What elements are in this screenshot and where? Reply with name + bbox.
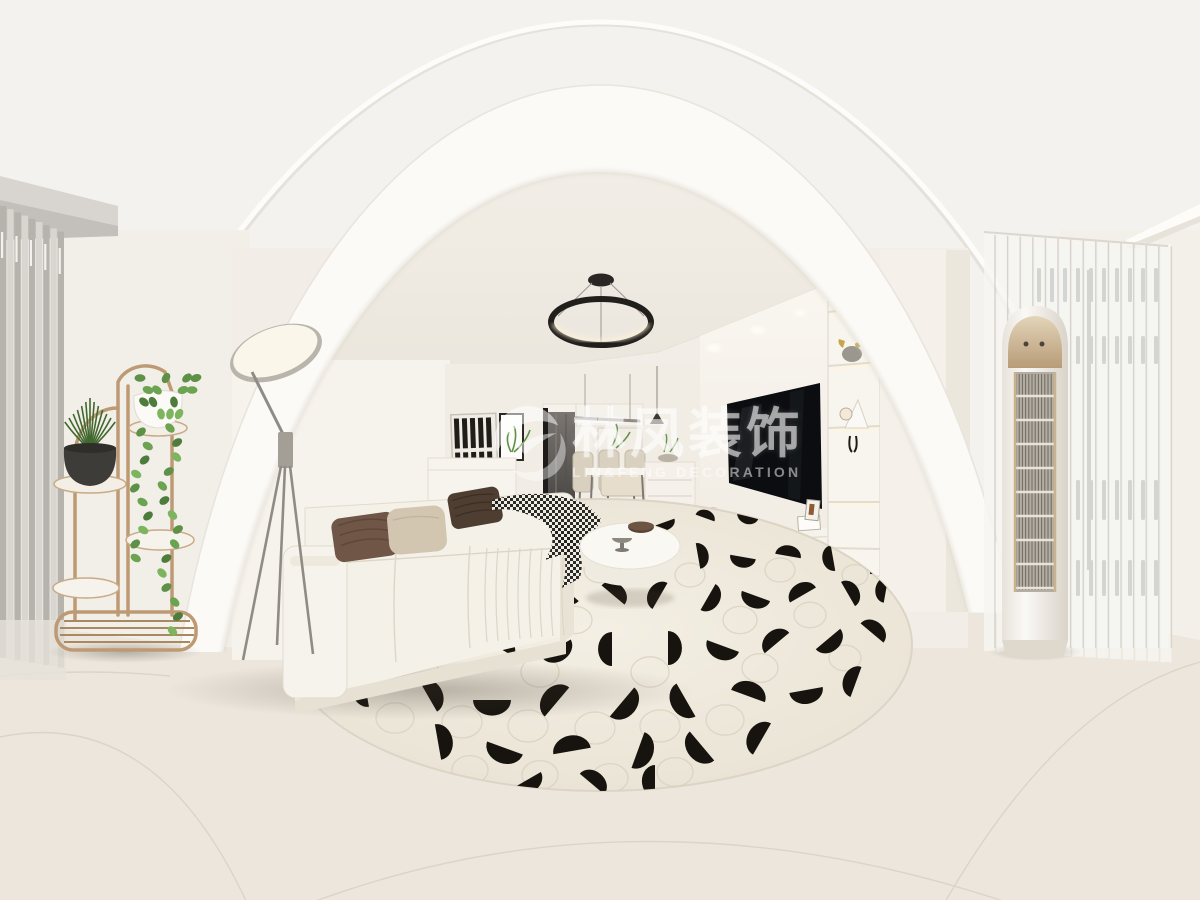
panorama-living-room: 林凤装饰 LIN&FENG DECORATION — [0, 0, 1200, 900]
ac-indicator — [1040, 342, 1045, 347]
shelf-plate — [53, 578, 119, 598]
left-sheer-curtains — [0, 206, 66, 680]
lamp-hub — [278, 432, 293, 468]
ac-unit — [989, 306, 1081, 661]
ac-indicator — [1024, 342, 1029, 347]
scene-svg — [0, 0, 1200, 900]
ac-grille — [1014, 372, 1056, 592]
sofa-shadow — [165, 660, 695, 720]
ac-base — [1002, 640, 1068, 659]
